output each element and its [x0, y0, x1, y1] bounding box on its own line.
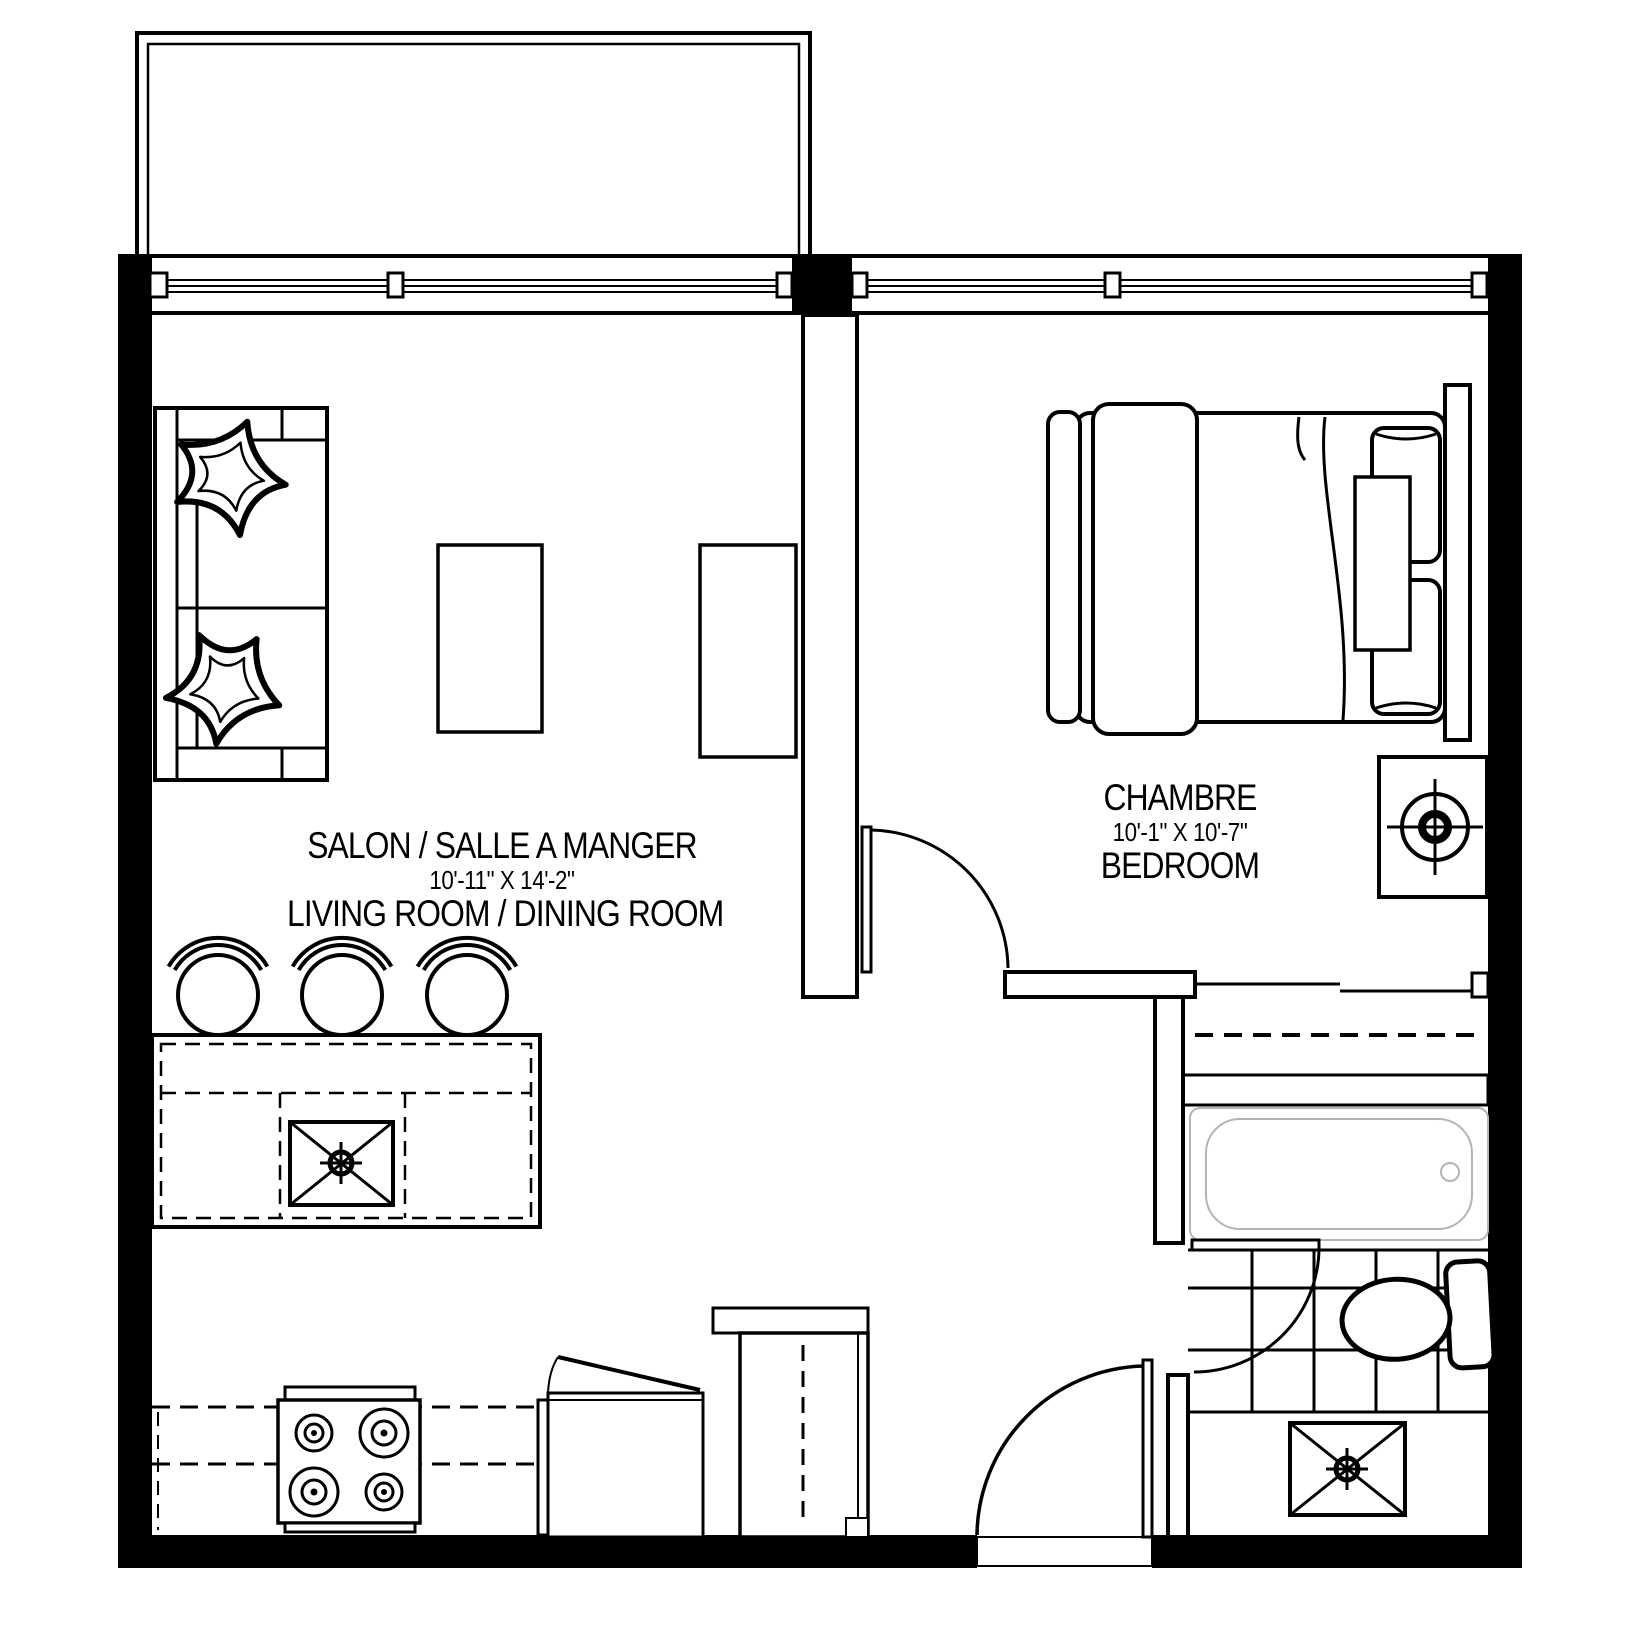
living-room-label: SALON / SALLE A MANGER 10'-11" X 14'-2" … [287, 826, 717, 934]
entry-threshold [977, 1537, 1152, 1566]
window-mullion [1105, 273, 1120, 297]
burner-icon [360, 1409, 408, 1457]
floor-plan: SALON / SALLE A MANGER 10'-11" X 14'-2" … [0, 0, 1639, 1639]
bed [1048, 385, 1470, 740]
closet [1005, 972, 1488, 1035]
burner-icon [366, 1474, 402, 1510]
wall-bottom-right [1152, 1535, 1522, 1568]
closet-front-edge [1195, 984, 1472, 991]
coffee-table [438, 545, 542, 732]
bar-stools [169, 938, 517, 1035]
bathroom-left-wall-lower [1168, 1375, 1188, 1537]
nightstand [1379, 757, 1487, 897]
bathroom-door-swing-arc [1194, 1250, 1319, 1372]
living-room-dimensions: 10'-11" X 14'-2" [287, 866, 717, 894]
structural-column [792, 254, 852, 315]
kitchen-island [152, 1035, 540, 1227]
folded-blanket [1093, 404, 1197, 734]
kitchen [152, 938, 868, 1537]
floor-plan-drawing [0, 0, 1639, 1639]
entry-door-swing-arc [977, 1366, 1143, 1535]
window-mullion [777, 273, 792, 297]
window-mullion [388, 273, 403, 297]
bathroom-top-wall [1183, 1075, 1488, 1105]
closet-wall [1005, 972, 1195, 997]
bathroom-door [1192, 1240, 1319, 1372]
bathtub [1190, 1108, 1488, 1240]
bathroom-door-leaf [1192, 1240, 1319, 1250]
vanity-sink [1290, 1423, 1405, 1515]
dishwasher-open-door [548, 1357, 703, 1537]
bedroom-door-swing-arc [871, 830, 1008, 968]
window-mullion [1472, 273, 1487, 297]
burner-icon [296, 1415, 332, 1451]
foot-bench [1048, 412, 1080, 722]
bathroom [1155, 997, 1495, 1537]
bedroom-name-en: BEDROOM [1051, 846, 1309, 886]
entry-door [977, 1360, 1152, 1566]
living-room-name-fr: SALON / SALLE A MANGER [287, 826, 717, 866]
bedroom-label: CHAMBRE 10'-1" X 10'-7" BEDROOM [1051, 778, 1309, 886]
closet-wall-end [1472, 973, 1488, 997]
center-cushion [1355, 477, 1410, 650]
bedroom-partition-wall [803, 315, 857, 997]
bar-stool [169, 938, 268, 1035]
headboard [1445, 385, 1470, 740]
burner-icon [290, 1468, 338, 1516]
bar-stool [293, 938, 392, 1035]
bathtub-drain [1441, 1163, 1459, 1181]
wall-bottom-left [118, 1535, 977, 1568]
island-sink [290, 1122, 393, 1205]
toilet [1339, 1260, 1494, 1374]
living-room-name-en: LIVING ROOM / DINING ROOM [287, 894, 717, 934]
bedroom-door-leaf [862, 827, 871, 972]
bar-stool [418, 938, 517, 1035]
bathroom-left-wall-upper [1155, 997, 1183, 1243]
tv-cabinet [700, 545, 796, 757]
balcony [137, 33, 810, 256]
refrigerator [713, 1308, 868, 1537]
range-stove [278, 1387, 420, 1532]
window-mullion [852, 273, 867, 297]
entry-door-leaf [1143, 1360, 1152, 1537]
sofa [155, 404, 327, 780]
toilet-tank [1445, 1260, 1494, 1368]
wall-left [118, 254, 152, 1568]
window-mullion [150, 273, 167, 297]
wall-right [1488, 254, 1522, 1568]
bedroom-dimensions: 10'-1" X 10'-7" [1051, 818, 1309, 846]
bedroom-door [862, 827, 1008, 972]
bedroom-name-fr: CHAMBRE [1051, 778, 1309, 818]
